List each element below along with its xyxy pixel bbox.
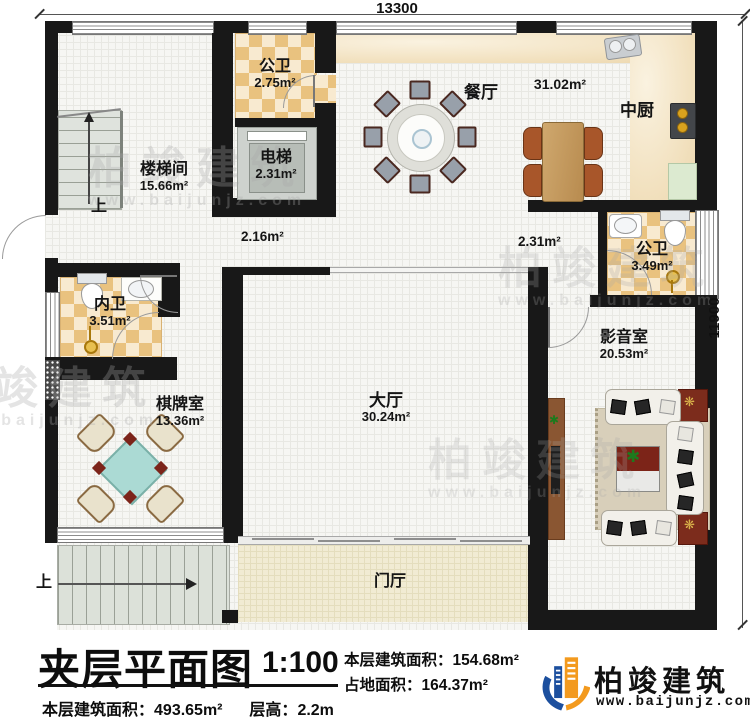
passage-area-left: 2.16m² (241, 229, 284, 244)
window (45, 292, 60, 362)
stairs-upper-flight (58, 110, 122, 210)
room-name: 门厅 (366, 573, 414, 591)
room-name: 公卫 (235, 58, 315, 76)
room-label-foyer: 门厅 (366, 573, 414, 591)
wall (315, 33, 336, 73)
room-area: 20.53m² (580, 347, 668, 362)
floor-plan-page: ✱ ❋ ❋ ✱ (0, 0, 750, 728)
window (695, 210, 719, 299)
wall (212, 33, 233, 217)
room-label-stairwell: 楼梯间 15.66m² (118, 161, 210, 193)
dining-chair (458, 127, 477, 148)
height-value: 2.2m (297, 702, 333, 719)
room-area: 13.36m² (142, 414, 218, 429)
room-label-bathroom-right: 公卫 3.49m² (620, 241, 684, 273)
dining-chair (410, 81, 431, 100)
room-name: 影音室 (580, 329, 668, 347)
window (556, 21, 692, 35)
dining-area-value: 31.02m² (524, 76, 596, 94)
room-name: 公卫 (620, 241, 684, 259)
kitchen-chair (584, 164, 603, 197)
wall (515, 21, 556, 33)
door-entry-left (2, 215, 46, 259)
stairs-up-label-top: 上 (91, 192, 107, 216)
height-label: 层高： (249, 702, 297, 719)
title-rule (38, 684, 338, 687)
room-area: 3.51m² (80, 314, 140, 329)
floor-area-label: 本层建筑面积： (344, 652, 453, 669)
room-name: 内卫 (80, 296, 140, 314)
sofa-bottom (601, 510, 677, 546)
door-leaf (140, 275, 177, 277)
brand-logo: 柏竣建筑 www.baijunjz.com (536, 650, 736, 718)
door-leaf (548, 307, 550, 347)
land-area-label: 占地面积： (344, 677, 422, 694)
room-name: 中厨 (608, 101, 666, 120)
floor-drain (84, 340, 98, 354)
sofa-pillow (677, 495, 694, 511)
room-area: 3.49m² (620, 259, 684, 274)
kitchen-chair (523, 164, 542, 197)
stairs-lower-direction-line (58, 583, 188, 585)
brand-url: www.baijunjz.com (596, 694, 750, 710)
dimension-line-right (742, 22, 743, 628)
wall (222, 267, 243, 543)
stairs-upper-direction-line (88, 120, 90, 204)
wall (528, 610, 717, 630)
wall (45, 400, 58, 543)
sofa-pillow (631, 520, 648, 536)
wall (690, 21, 717, 33)
sofa-pillow (634, 399, 651, 415)
tv-screen (551, 446, 560, 494)
sofa-pillow (677, 449, 694, 465)
elevator-door-slot (247, 131, 307, 141)
room-name: 楼梯间 (118, 161, 210, 179)
wall (212, 198, 336, 217)
sofa-pillow (610, 399, 627, 415)
wall (222, 610, 238, 623)
plan-scale: 1:100 (262, 646, 339, 680)
bathroom-sink-bowl (614, 217, 637, 234)
side-table-plant-icon: ❋ (684, 395, 695, 408)
room-name: 餐厅 (452, 83, 510, 102)
room-name: 电梯 (239, 149, 313, 167)
sliding-door-panel (252, 538, 314, 540)
window (57, 527, 224, 543)
sofa-pillow (655, 520, 672, 536)
kitchen-cabinet (668, 163, 697, 200)
wall (305, 21, 336, 33)
floor-bathroom-top-doorway (315, 75, 336, 105)
window (72, 21, 214, 35)
wall (222, 267, 330, 275)
room-label-elevator: 电梯 2.31m² (239, 149, 313, 181)
tv-plant-icon: ✱ (549, 414, 559, 426)
total-area-row: 本层建筑面积：493.65m² 层高：2.2m (42, 696, 334, 720)
room-area: 30.24m² (352, 410, 420, 425)
stairs-lower-flight (57, 545, 230, 625)
room-name: 大厅 (352, 391, 420, 410)
sliding-door-panel (460, 540, 522, 542)
floor-drain-stem (671, 280, 673, 293)
stove-burner (677, 122, 688, 133)
room-area: 31.02m² (534, 76, 586, 92)
room-area: 2.31m² (239, 167, 313, 182)
stairs-up-label-bottom: 上 (36, 568, 52, 592)
kitchen-table (542, 122, 584, 202)
room-label-hall: 大厅 30.24m² (352, 391, 420, 425)
wall (45, 357, 177, 380)
land-area-value: 164.37m² (422, 677, 488, 694)
brand-logo-icon (536, 652, 590, 719)
stove-burner (677, 108, 688, 119)
dining-table-center (412, 129, 432, 149)
room-area: 15.66m² (118, 179, 210, 194)
wall (45, 21, 72, 33)
kitchen-chair (584, 127, 603, 160)
land-area-row: 占地面积：164.37m² (344, 673, 488, 695)
sofa-pillow (676, 471, 694, 488)
room-label-dining: 餐厅 (452, 83, 510, 102)
room-label-bathroom-inner: 内卫 3.51m² (80, 296, 140, 328)
dining-chair (410, 175, 431, 194)
dimension-right-value: 11900 (706, 288, 723, 348)
total-area-label: 本层建筑面积： (42, 702, 154, 719)
sofa-pillow (606, 520, 623, 536)
plan-title: 夹层平面图 (38, 636, 253, 697)
kitchen-chair (523, 127, 542, 160)
coffee-table-plant-icon: ✱ (626, 448, 640, 465)
sliding-door-panel (394, 538, 456, 540)
room-label-card-room: 棋牌室 13.36m² (142, 396, 218, 428)
room-name: 棋牌室 (142, 396, 218, 414)
side-table-plant-icon: ❋ (684, 518, 695, 531)
sofa-top (605, 389, 681, 425)
window (336, 21, 517, 35)
sofa-right (666, 421, 704, 515)
stairs-lower-arrow-icon (186, 578, 197, 590)
floor-area-value: 154.68m² (453, 652, 519, 669)
wall (590, 295, 717, 307)
stairs-upper-arrow-icon (84, 112, 94, 122)
passage-area-right: 2.31m² (518, 234, 561, 249)
vent-unit (45, 360, 60, 400)
wall (598, 212, 607, 297)
wall (235, 118, 315, 127)
dining-chair (364, 127, 383, 148)
dimension-top-value: 13300 (352, 0, 442, 17)
room-area: 2.75m² (235, 76, 315, 91)
wall-opening (330, 267, 528, 273)
wall (45, 527, 57, 543)
total-area-value: 493.65m² (154, 702, 223, 719)
window (248, 21, 307, 35)
room-label-bathroom-top: 公卫 2.75m² (235, 58, 315, 90)
wall (222, 520, 238, 543)
wall (695, 33, 717, 210)
room-label-media: 影音室 20.53m² (580, 329, 668, 361)
wall (45, 33, 58, 215)
wall (212, 21, 248, 33)
wall (528, 267, 548, 623)
floor-area-row: 本层建筑面积：154.68m² (344, 648, 519, 670)
sliding-door-panel (318, 540, 380, 542)
room-label-kitchen: 中厨 (608, 101, 666, 120)
sofa-pillow (659, 399, 676, 415)
sofa-pillow (677, 426, 694, 442)
